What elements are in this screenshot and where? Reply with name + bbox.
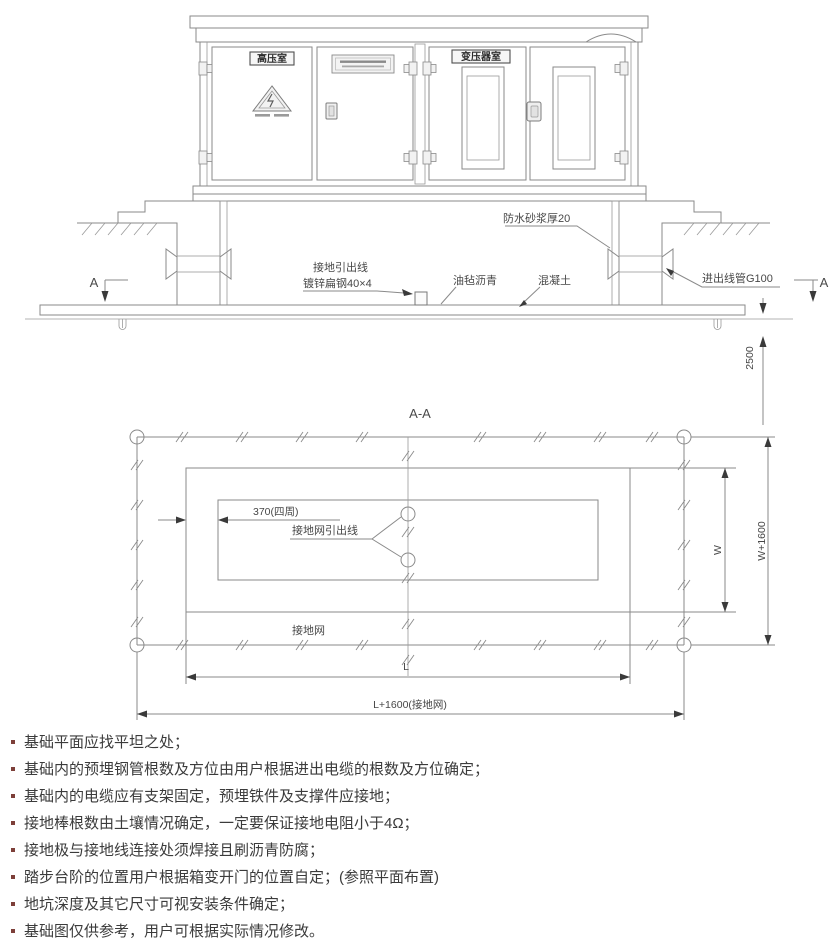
door-hv	[212, 47, 312, 180]
note-bullet-icon	[11, 902, 15, 906]
plan-centerline	[402, 437, 414, 676]
svg-text:进出线管G100: 进出线管G100	[702, 271, 773, 285]
svg-text:镀锌扁钢40×4: 镀锌扁钢40×4	[303, 276, 372, 290]
note-bullet-icon	[11, 875, 15, 879]
note-item: 接地棒根数由土壤情况确定，一定要保证接地电阻小于4Ω；	[8, 809, 820, 836]
note-bullet-icon	[11, 929, 15, 933]
svg-text:370(四周): 370(四周)	[253, 506, 299, 518]
note-text: 踏步台阶的位置用户根据箱变开门的位置自定；(参照平面布置)	[24, 866, 439, 887]
plan-view: A-A 370(四周)	[130, 406, 775, 720]
notes-list: 基础平面应找平坦之处； 基础内的预埋钢管根数及方位由用户根据进出电缆的根数及方位…	[0, 722, 830, 944]
pipe-bellmouth-icon	[220, 249, 231, 279]
cabinet-body: 高压室	[199, 42, 638, 186]
hinge-icon	[615, 151, 628, 164]
svg-text:W+1600: W+1600	[756, 521, 768, 561]
pipe-sleeve	[619, 256, 662, 272]
hinge-icon	[199, 151, 212, 164]
note-item: 接地极与接地线连接处须焊接且刷沥青防腐；	[8, 836, 820, 863]
hinge-icon	[615, 62, 628, 75]
svg-text:防水砂浆厚20: 防水砂浆厚20	[503, 211, 570, 225]
note-text: 基础内的电缆应有支架固定，预埋铁件及支撑件应接地；	[24, 785, 399, 806]
technical-drawing: 高压室	[0, 0, 830, 722]
vent-cap	[586, 34, 636, 42]
svg-text:接地网引出线: 接地网引出线	[292, 523, 358, 537]
note-text: 接地极与接地线连接处须焊接且刷沥青防腐；	[24, 839, 324, 860]
note-text: 基础图仅供参考，用户可根据实际情况修改。	[24, 920, 324, 941]
note-bullet-icon	[11, 740, 15, 744]
dim-l-outer: L+1600(接地网)	[137, 652, 684, 720]
elevation-view: 高压室	[25, 16, 829, 425]
label-concrete: 混凝土	[519, 273, 571, 307]
section-marker-right: A	[794, 275, 829, 302]
note-text: 基础内的预埋钢管根数及方位由用户根据进出电缆的根数及方位确定；	[24, 758, 489, 779]
svg-text:接地引出线: 接地引出线	[313, 260, 368, 274]
svg-text:L: L	[403, 661, 409, 673]
dim-2500: 2500	[744, 298, 767, 425]
note-item: 基础内的预埋钢管根数及方位由用户根据进出电缆的根数及方位确定；	[8, 755, 820, 782]
ground-hatch-left	[77, 223, 157, 235]
anchor-icon	[119, 319, 126, 330]
transformer-room-plate: 变压器室	[452, 50, 510, 63]
nameplate	[332, 55, 394, 73]
label-grid-lead: 接地网引出线	[290, 517, 401, 557]
door-handle	[326, 103, 337, 119]
svg-text:L+1600(接地网): L+1600(接地网)	[373, 698, 447, 711]
label-grid: 接地网	[292, 624, 325, 637]
hv-room-label: 高压室	[257, 52, 287, 65]
svg-text:油毡沥青: 油毡沥青	[453, 273, 497, 287]
hinge-icon	[423, 62, 436, 75]
hinge-icon	[404, 62, 417, 75]
note-item: 基础图仅供参考，用户可根据实际情况修改。	[8, 917, 820, 944]
svg-text:混凝土: 混凝土	[538, 273, 571, 287]
pipe-bellmouth-icon	[166, 249, 177, 279]
section-marker-left: A	[90, 275, 128, 302]
roof	[190, 16, 648, 42]
ground-hatch-right	[684, 223, 770, 235]
note-bullet-icon	[11, 848, 15, 852]
brick-pier-left	[118, 201, 231, 305]
warning-sign-icon	[253, 86, 291, 117]
grounding-grid-outline	[130, 430, 691, 652]
svg-text:A: A	[820, 275, 829, 290]
dim-wall-thickness: 370(四周)	[158, 506, 340, 524]
note-item: 基础平面应找平坦之处；	[8, 728, 820, 755]
note-bullet-icon	[11, 767, 15, 771]
louver-vent-left	[462, 67, 504, 169]
hinge-icon	[423, 151, 436, 164]
plan-title: A-A	[409, 406, 431, 421]
note-text: 接地棒根数由土壤情况确定，一定要保证接地电阻小于4Ω；	[24, 812, 419, 833]
hinge-icon	[404, 151, 417, 164]
note-item: 地坑深度及其它尺寸可视安装条件确定；	[8, 890, 820, 917]
dim-w: W	[630, 468, 736, 612]
transformer-room-label: 变压器室	[461, 50, 501, 63]
note-bullet-icon	[11, 821, 15, 825]
pipe-sleeve	[177, 256, 220, 272]
hinge-icon	[199, 62, 212, 75]
note-bullet-icon	[11, 794, 15, 798]
foundation-slab	[25, 305, 793, 330]
brick-pier-right	[608, 201, 721, 305]
note-text: 地坑深度及其它尺寸可视安装条件确定；	[24, 893, 294, 914]
louver-vent-right	[553, 67, 595, 169]
svg-text:2500: 2500	[744, 346, 756, 370]
label-conduit: 进出线管G100	[666, 268, 780, 287]
svg-text:W: W	[712, 545, 724, 555]
cabinet-base	[193, 186, 646, 201]
label-asphalt-felt: 油毡沥青	[441, 273, 497, 304]
note-item: 基础内的电缆应有支架固定，预埋铁件及支撑件应接地；	[8, 782, 820, 809]
label-waterproof: 防水砂浆厚20	[503, 211, 610, 248]
ground-lead-stub	[415, 292, 427, 305]
hv-room-plate: 高压室	[250, 52, 294, 65]
label-ground-lead: 接地引出线 镀锌扁钢40×4	[303, 260, 413, 296]
note-item: 踏步台阶的位置用户根据箱变开门的位置自定；(参照平面布置)	[8, 863, 820, 890]
note-text: 基础平面应找平坦之处；	[24, 731, 189, 752]
pipe-bellmouth-icon	[608, 249, 619, 279]
anchor-icon	[714, 319, 721, 330]
door-handle	[527, 102, 541, 121]
svg-text:A: A	[90, 275, 99, 290]
